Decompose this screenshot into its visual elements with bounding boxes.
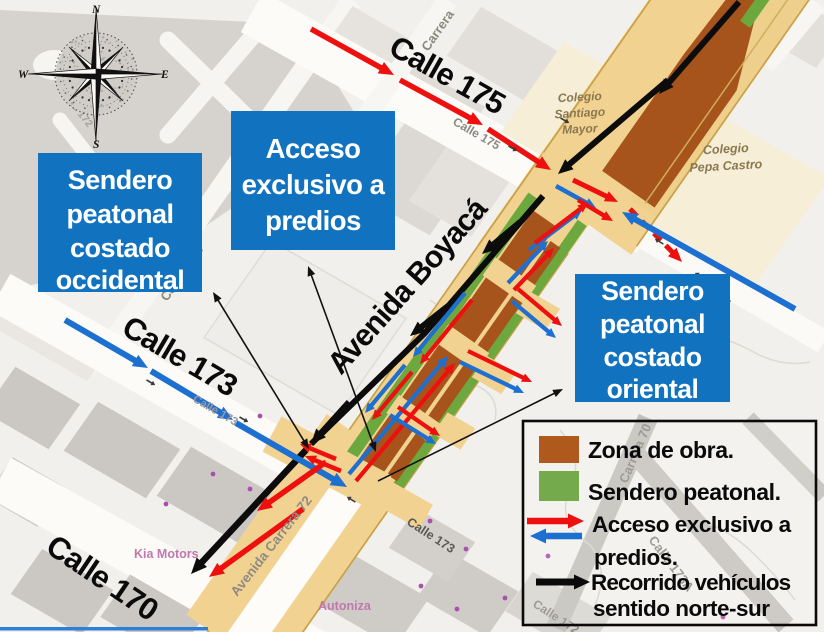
svg-text:costado: costado bbox=[70, 233, 170, 263]
svg-text:sentido norte-sur: sentido norte-sur bbox=[593, 596, 770, 621]
svg-text:Sendero: Sendero bbox=[601, 276, 704, 306]
svg-text:Autoniza: Autoniza bbox=[318, 599, 372, 613]
svg-text:Recorrido vehículos: Recorrido vehículos bbox=[591, 570, 791, 595]
svg-text:Sendero: Sendero bbox=[68, 165, 173, 195]
svg-text:Acceso exclusivo a: Acceso exclusivo a bbox=[592, 512, 792, 537]
svg-text:W: W bbox=[18, 69, 29, 81]
svg-text:exclusivo a: exclusivo a bbox=[242, 169, 386, 200]
svg-text:peatonal: peatonal bbox=[66, 199, 173, 229]
svg-text:peatonal: peatonal bbox=[600, 309, 705, 339]
svg-text:Mayor: Mayor bbox=[562, 121, 599, 137]
svg-text:occidental: occidental bbox=[56, 265, 185, 295]
svg-text:predios.: predios. bbox=[594, 545, 678, 570]
svg-text:Zona de obra.: Zona de obra. bbox=[588, 437, 734, 463]
svg-text:Colegio: Colegio bbox=[557, 89, 602, 105]
svg-text:Colegio: Colegio bbox=[703, 141, 750, 157]
svg-text:Santiago: Santiago bbox=[554, 105, 605, 122]
svg-text:E: E bbox=[160, 69, 169, 81]
svg-text:costado: costado bbox=[603, 342, 701, 372]
svg-text:Acceso: Acceso bbox=[266, 133, 361, 164]
svg-text:Kia Motors: Kia Motors bbox=[134, 547, 199, 561]
svg-text:oriental: oriental bbox=[607, 374, 699, 404]
svg-text:N: N bbox=[91, 4, 101, 16]
svg-text:S: S bbox=[93, 139, 99, 151]
svg-text:Sendero peatonal.: Sendero peatonal. bbox=[588, 479, 781, 505]
svg-text:predios: predios bbox=[265, 205, 361, 236]
